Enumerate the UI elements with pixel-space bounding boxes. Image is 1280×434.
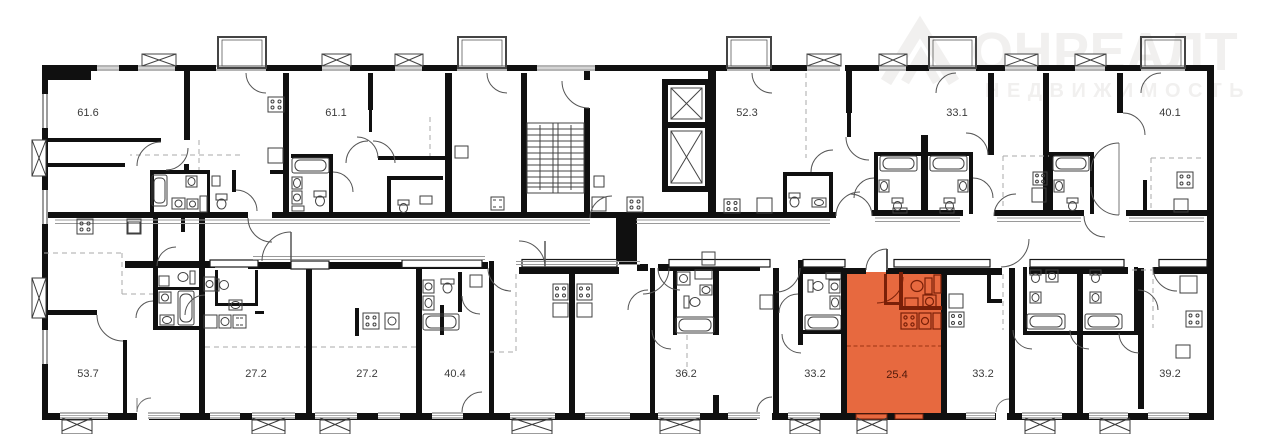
- svg-text:52.3: 52.3: [736, 107, 757, 119]
- svg-text:39.2: 39.2: [1159, 368, 1180, 380]
- svg-text:40.4: 40.4: [444, 368, 465, 380]
- svg-text:27.2: 27.2: [356, 368, 377, 380]
- svg-text:61.1: 61.1: [325, 107, 346, 119]
- svg-text:ОНРЕАЛТ: ОНРЕАЛТ: [971, 22, 1238, 82]
- svg-text:33.2: 33.2: [804, 368, 825, 380]
- svg-text:40.1: 40.1: [1159, 107, 1180, 119]
- svg-text:36.2: 36.2: [675, 368, 696, 380]
- svg-text:25.4: 25.4: [886, 369, 907, 381]
- svg-text:61.6: 61.6: [77, 107, 98, 119]
- svg-text:27.2: 27.2: [245, 368, 266, 380]
- svg-text:33.1: 33.1: [946, 107, 967, 119]
- svg-text:33.2: 33.2: [972, 368, 993, 380]
- svg-text:53.7: 53.7: [77, 368, 98, 380]
